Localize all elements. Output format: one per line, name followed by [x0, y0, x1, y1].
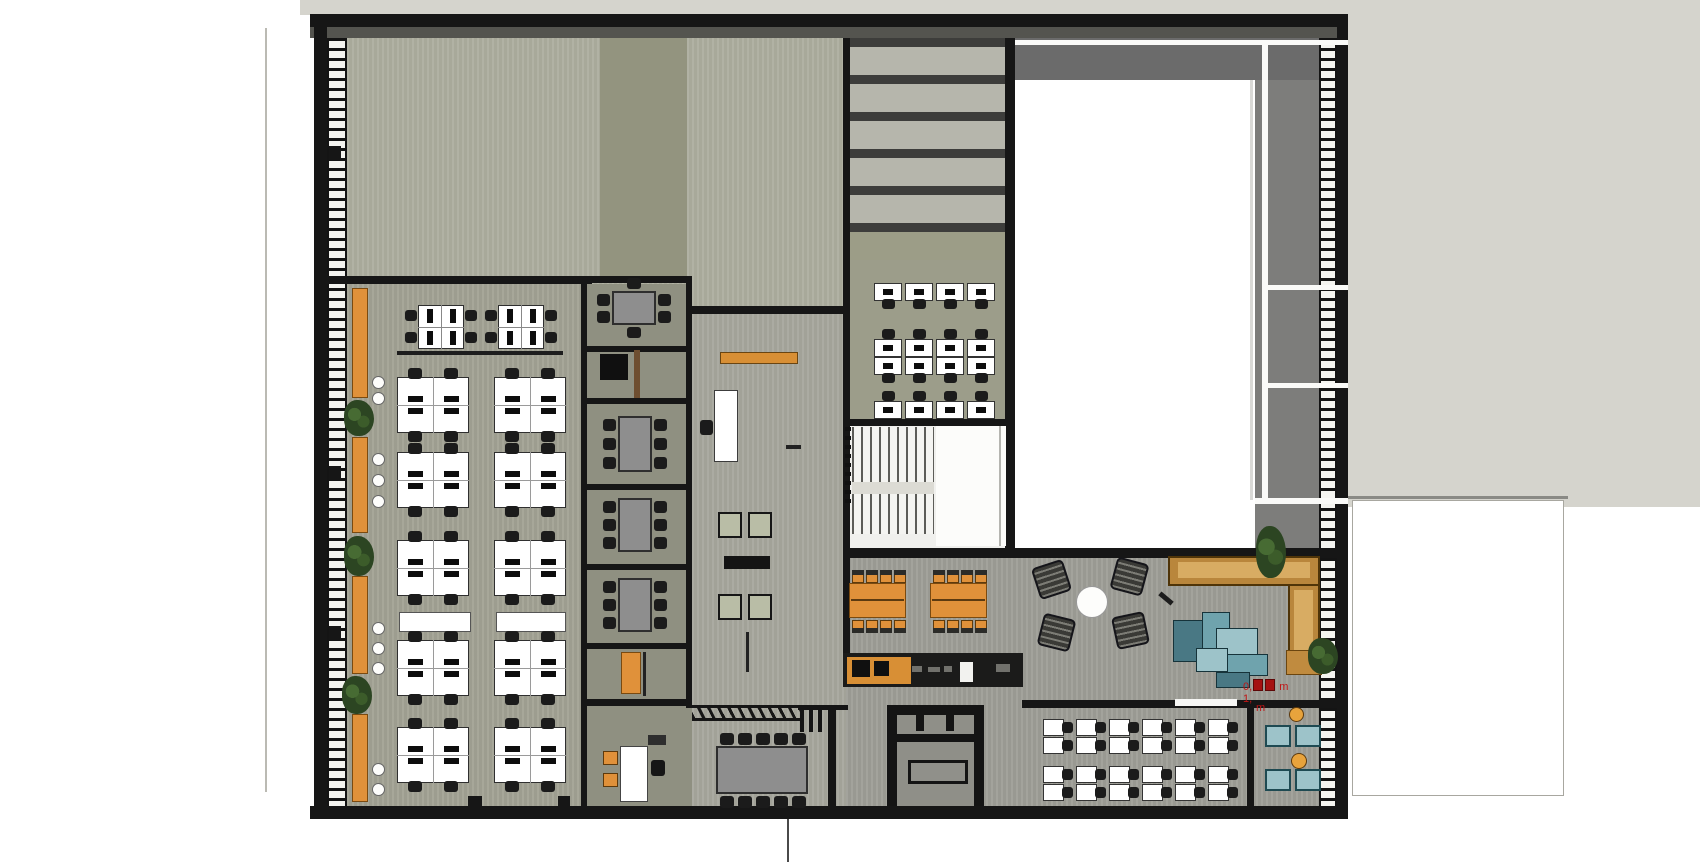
- training-desk: [1142, 766, 1163, 783]
- bench: [724, 556, 770, 569]
- atrium-edge-line: [1250, 80, 1253, 500]
- task-chair-icon: [444, 594, 458, 605]
- task-chair-icon: [444, 718, 458, 729]
- wall-hall-room-right: [828, 705, 836, 806]
- column-bottom-2: [558, 796, 570, 806]
- task-chair-icon: [1095, 769, 1106, 780]
- monitor-icon: [444, 471, 459, 477]
- standing-desk: [714, 390, 738, 462]
- task-chair-icon: [774, 733, 788, 745]
- guest-chair-2: [603, 773, 618, 787]
- column-left-2: [329, 466, 341, 480]
- shaft-fin-2: [946, 705, 954, 731]
- wall-dash: [786, 445, 801, 449]
- louver-frame: [850, 149, 1005, 158]
- dining-chair-back: [866, 628, 878, 633]
- task-chair-icon: [975, 391, 988, 401]
- task-chair-icon: [408, 531, 422, 542]
- monitor-icon: [505, 671, 520, 677]
- training-desk: [1043, 737, 1064, 754]
- dining-chair-back: [894, 570, 906, 575]
- dining-chair-back: [852, 628, 864, 633]
- task-chair-icon: [505, 781, 519, 792]
- monitor-icon: [883, 363, 893, 369]
- beam-cross-3: [1255, 498, 1348, 504]
- task-chair-icon: [913, 373, 926, 383]
- training-desk: [1175, 766, 1196, 783]
- monitor-icon: [541, 571, 556, 577]
- beam-cross-1: [1268, 285, 1348, 290]
- redacted-digit-icon: [1265, 679, 1275, 691]
- task-chair-icon: [505, 594, 519, 605]
- task-chair-icon: [597, 294, 610, 306]
- monitor-icon: [444, 758, 459, 764]
- locker-cabinet: [352, 576, 368, 674]
- monitor-icon: [408, 571, 423, 577]
- column-left-3: [329, 626, 341, 640]
- monitor-icon: [444, 671, 459, 677]
- training-desk: [1043, 719, 1064, 736]
- training-desk: [1142, 784, 1163, 801]
- task-chair-icon: [408, 718, 422, 729]
- dining-chair-back: [947, 570, 959, 575]
- task-chair-icon: [1161, 787, 1172, 798]
- task-chair-icon: [444, 431, 458, 442]
- task-chair-icon: [541, 631, 555, 642]
- training-desk: [1208, 719, 1229, 736]
- task-chair-icon: [1128, 740, 1139, 751]
- beam-vertical: [1262, 45, 1268, 501]
- task-chair-icon: [1161, 769, 1172, 780]
- stair-flight-upper: [852, 427, 934, 482]
- wall-room-div-4: [581, 564, 692, 570]
- task-chair-icon: [658, 294, 671, 306]
- task-chair-icon: [408, 694, 422, 705]
- task-chair-icon: [545, 310, 557, 321]
- stair-flight-lower: [852, 494, 934, 534]
- task-chair-icon: [444, 694, 458, 705]
- outside-right-panel: [1348, 0, 1700, 507]
- task-chair-icon: [654, 581, 667, 593]
- stair-shaft-rail: [798, 705, 848, 710]
- training-desk: [1208, 766, 1229, 783]
- monitor-icon: [427, 331, 433, 345]
- monitor-icon: [541, 671, 556, 677]
- task-chair-icon: [408, 431, 422, 442]
- coffee-machine-icon-2: [874, 661, 889, 676]
- door-orange: [621, 652, 641, 694]
- task-chair-icon: [408, 368, 422, 379]
- training-desk: [1109, 784, 1130, 801]
- dimension-label-3: m: [1256, 703, 1265, 714]
- louver-frame: [850, 112, 1005, 121]
- task-chair-icon: [1194, 740, 1205, 751]
- task-chair-icon: [627, 278, 641, 289]
- task-chair-icon: [1227, 722, 1238, 733]
- task-chair-icon: [541, 443, 555, 454]
- monitor-icon: [444, 571, 459, 577]
- guest-chair-1: [603, 751, 618, 765]
- dimension-label-2: 1,: [1243, 694, 1252, 705]
- task-chair-icon: [1161, 740, 1172, 751]
- monitor-icon: [507, 309, 513, 323]
- door-frame-line: [643, 652, 646, 696]
- task-chair-icon: [658, 311, 671, 323]
- task-chair-icon: [654, 438, 667, 450]
- coffee-machine-icon: [852, 660, 870, 677]
- task-chair-icon: [505, 368, 519, 379]
- atrium-void: [1015, 80, 1255, 558]
- task-chair-icon: [1062, 769, 1073, 780]
- stool-icon: [372, 392, 385, 405]
- cube-table-1: [718, 512, 742, 538]
- monitor-icon: [505, 746, 520, 752]
- task-chair-icon: [944, 373, 957, 383]
- task-chair-icon: [541, 531, 555, 542]
- task-chair-icon: [792, 796, 806, 808]
- bar-l-horizontal-inner: [1178, 562, 1310, 578]
- wall-bottom: [310, 806, 1348, 819]
- monitor-icon: [427, 309, 433, 323]
- sideboard: [720, 352, 798, 364]
- side-table-dark: [648, 735, 666, 745]
- dimension-text: m: [1256, 702, 1265, 714]
- monitor-icon: [945, 407, 955, 413]
- side-table-white-2: [496, 612, 566, 632]
- meeting-table: [618, 578, 652, 632]
- wall-hall-top: [687, 306, 848, 314]
- training-desk: [1109, 737, 1130, 754]
- cube-table-3: [718, 594, 742, 620]
- monitor-icon: [976, 363, 986, 369]
- task-chair-icon: [444, 368, 458, 379]
- monitor-icon: [408, 471, 423, 477]
- task-chair-icon: [603, 617, 616, 629]
- office-desk-white: [620, 746, 648, 802]
- task-chair-icon: [1062, 722, 1073, 733]
- dining-chair-back: [947, 628, 959, 633]
- cable-tray: [397, 351, 563, 355]
- wall-teal-room-left: [1247, 700, 1254, 806]
- task-chair-icon: [654, 457, 667, 469]
- task-chair-icon: [1194, 769, 1205, 780]
- louver-panel: [850, 121, 1005, 149]
- training-desk: [1142, 719, 1163, 736]
- plant-icon: [1308, 638, 1338, 674]
- shaft-wall-top: [887, 705, 984, 715]
- task-chair-icon: [597, 311, 610, 323]
- stool-icon: [372, 642, 385, 655]
- task-chair-icon: [1227, 769, 1238, 780]
- stool-orange-2: [1291, 753, 1307, 769]
- table-seam: [851, 599, 904, 601]
- desk-divider: [494, 755, 566, 756]
- shaft-wall-left: [887, 705, 897, 806]
- column-bottom-1: [468, 796, 482, 806]
- wall-atrium-left: [1005, 38, 1015, 558]
- task-chair-icon: [720, 796, 734, 808]
- task-chair-icon: [603, 419, 616, 431]
- meeting-table: [612, 291, 656, 325]
- task-chair-icon: [975, 329, 988, 339]
- training-desk: [1175, 784, 1196, 801]
- monitor-icon: [505, 471, 520, 477]
- dining-chair-back: [894, 628, 906, 633]
- task-chair-icon: [944, 329, 957, 339]
- lounge-seat-teal: [1265, 769, 1291, 791]
- task-chair-icon: [505, 718, 519, 729]
- training-desk: [1043, 784, 1064, 801]
- stairwell-divider-line: [999, 426, 1001, 546]
- desk-divider: [397, 568, 469, 569]
- monitor-icon: [945, 345, 955, 351]
- door-leaf-line: [746, 632, 749, 672]
- task-chair-icon: [405, 310, 417, 321]
- stool-icon: [372, 783, 385, 796]
- task-chair-icon: [444, 506, 458, 517]
- task-chair-icon: [654, 501, 667, 513]
- cube-table-4: [748, 594, 772, 620]
- louver-frame: [850, 38, 1005, 47]
- monitor-icon: [408, 559, 423, 565]
- dining-chair-back: [852, 570, 864, 575]
- stool-icon: [372, 453, 385, 466]
- lounge-seat-teal: [1265, 725, 1291, 747]
- training-desk: [1109, 766, 1130, 783]
- task-chair-icon: [444, 531, 458, 542]
- hall-floor: [692, 314, 848, 806]
- plant-icon: [344, 536, 374, 576]
- task-chair-icon: [444, 443, 458, 454]
- monitor-icon: [408, 659, 423, 665]
- dining-chair-back: [961, 570, 973, 575]
- dining-chair-back: [866, 570, 878, 575]
- desk-divider: [397, 755, 469, 756]
- monitor-icon: [505, 758, 520, 764]
- monitor-icon: [505, 396, 520, 402]
- wall-room-div-6: [581, 699, 692, 706]
- training-desk: [1175, 719, 1196, 736]
- stool-orange-1: [1289, 707, 1304, 722]
- monitor-icon: [505, 483, 520, 489]
- column-left-1: [329, 146, 341, 160]
- task-chair-icon: [444, 631, 458, 642]
- task-chair-icon: [603, 501, 616, 513]
- phone-desk: [600, 354, 628, 380]
- task-chair-icon: [627, 327, 641, 338]
- task-chair-icon: [408, 781, 422, 792]
- task-chair-icon: [465, 310, 477, 321]
- louver-frame: [850, 186, 1005, 195]
- dining-chair-back: [933, 570, 945, 575]
- louver-panel: [850, 84, 1005, 112]
- task-chair-icon: [541, 431, 555, 442]
- locker-cabinet: [352, 437, 368, 533]
- task-chair-icon: [1128, 722, 1139, 733]
- task-chair-icon: [913, 329, 926, 339]
- locker-cabinet: [352, 714, 368, 802]
- terrace-floor: [347, 38, 848, 314]
- wall-room-div-3: [581, 484, 692, 490]
- task-chair-icon: [541, 781, 555, 792]
- monitor-icon: [505, 571, 520, 577]
- bar-item: [928, 667, 940, 672]
- monitor-icon: [505, 559, 520, 565]
- dining-chair-back: [975, 628, 987, 633]
- bar-item: [944, 666, 952, 672]
- shaft-platform: [908, 760, 968, 784]
- locker-cabinet: [352, 288, 368, 398]
- training-desk: [1142, 737, 1163, 754]
- wall-office-top: [320, 276, 592, 284]
- monitor-icon: [450, 309, 456, 323]
- adjacent-building-roof-edge: [1348, 496, 1568, 499]
- task-chair-icon: [1227, 787, 1238, 798]
- task-chair-icon: [1095, 787, 1106, 798]
- monitor-icon: [530, 331, 536, 345]
- louver-panel: [850, 195, 1005, 223]
- task-chair-icon: [774, 796, 788, 808]
- monitor-icon: [914, 345, 924, 351]
- monitor-icon: [408, 408, 423, 414]
- task-chair-icon: [720, 733, 734, 745]
- desk-divider: [397, 480, 469, 481]
- monitor-icon: [505, 659, 520, 665]
- task-chair-icon: [603, 537, 616, 549]
- monitor-icon: [408, 746, 423, 752]
- plant-icon: [344, 400, 374, 436]
- whiteboard-band: [1175, 699, 1237, 706]
- wall-desk-room-bottom: [850, 419, 1005, 426]
- desk-divider: [397, 668, 469, 669]
- training-desk: [1043, 766, 1064, 783]
- monitor-icon: [408, 396, 423, 402]
- monitor-icon: [883, 345, 893, 351]
- task-chair-icon: [505, 443, 519, 454]
- task-chair-icon: [654, 519, 667, 531]
- task-chair-icon: [913, 299, 926, 309]
- hall-meeting-table: [716, 746, 808, 794]
- grate-walkway: [692, 705, 804, 721]
- cube-table-2: [748, 512, 772, 538]
- training-desk: [1076, 784, 1097, 801]
- monitor-icon: [914, 289, 924, 295]
- shaft-floor: [887, 705, 984, 806]
- wall-room-div-5: [581, 643, 692, 649]
- training-desk: [1208, 737, 1229, 754]
- monitor-icon: [530, 309, 536, 323]
- task-chair-icon: [654, 537, 667, 549]
- task-chair-icon: [882, 373, 895, 383]
- monitor-icon: [444, 396, 459, 402]
- terrace-dark-band: [600, 38, 687, 278]
- task-chair-icon: [603, 438, 616, 450]
- wall-left: [314, 14, 327, 819]
- monitor-icon: [945, 363, 955, 369]
- outside-bottom-line: [787, 819, 789, 862]
- desk-divider: [494, 568, 566, 569]
- monitor-icon: [408, 671, 423, 677]
- desk-divider: [494, 480, 566, 481]
- bar-item: [996, 664, 1010, 672]
- task-chair-icon: [408, 443, 422, 454]
- floor-plan-canvas: 0, m 1, m: [0, 0, 1700, 862]
- task-chair-icon: [603, 599, 616, 611]
- lounge-seat-teal: [1295, 725, 1321, 747]
- stool-icon: [372, 622, 385, 635]
- wall-room-div-2: [581, 398, 692, 404]
- lounge-chair-icon: [1111, 611, 1150, 650]
- task-chair-icon: [1194, 722, 1205, 733]
- stool-icon: [372, 662, 385, 675]
- task-chair-icon: [541, 694, 555, 705]
- task-chair-icon: [603, 519, 616, 531]
- stool-icon: [372, 763, 385, 776]
- rail-post-3: [818, 710, 822, 732]
- task-chair-icon: [792, 733, 806, 745]
- dining-chair-back: [933, 628, 945, 633]
- monitor-icon: [408, 483, 423, 489]
- monitor-icon: [541, 396, 556, 402]
- lounge-table-circle: [1076, 586, 1108, 618]
- window-wall-right: [1319, 38, 1337, 806]
- task-chair-icon: [654, 599, 667, 611]
- dining-chair-back: [880, 570, 892, 575]
- stairwell-open-area: [936, 426, 1006, 546]
- stool-icon: [372, 474, 385, 487]
- task-chair-icon: [405, 332, 417, 343]
- plant-icon: [342, 676, 372, 714]
- wall-right: [1337, 14, 1348, 819]
- task-chair-icon: [408, 631, 422, 642]
- task-chair-icon: [882, 391, 895, 401]
- task-chair-icon: [465, 332, 477, 343]
- stool-icon: [372, 376, 385, 389]
- sofa-module: [1196, 648, 1228, 672]
- dining-chair-back: [880, 628, 892, 633]
- task-chair-icon: [1062, 787, 1073, 798]
- phone-room-panel: [634, 350, 640, 398]
- monitor-icon: [541, 559, 556, 565]
- desk-divider: [418, 327, 464, 328]
- side-table-white-1: [399, 612, 471, 632]
- training-desk: [1076, 766, 1097, 783]
- task-chair-icon: [505, 694, 519, 705]
- louver-panel: [850, 232, 1005, 260]
- task-chair-icon: [505, 431, 519, 442]
- training-desk: [1175, 737, 1196, 754]
- task-chair-icon: [756, 796, 770, 808]
- task-chair-icon: [913, 391, 926, 401]
- task-chair-icon: [1095, 722, 1106, 733]
- task-chair-icon: [541, 594, 555, 605]
- monitor-icon: [507, 331, 513, 345]
- monitor-icon: [444, 659, 459, 665]
- task-chair-icon: [654, 419, 667, 431]
- monitor-icon: [541, 758, 556, 764]
- louver-frame: [850, 75, 1005, 84]
- beam-top: [1015, 40, 1348, 45]
- monitor-icon: [945, 289, 955, 295]
- task-chair-icon: [1062, 740, 1073, 751]
- wall-stair-zone-left: [843, 38, 850, 658]
- rail-post-2: [809, 710, 813, 732]
- task-chair-icon: [541, 368, 555, 379]
- task-chair-icon: [882, 299, 895, 309]
- training-desk: [1076, 737, 1097, 754]
- task-chair-icon: [545, 332, 557, 343]
- dimension-text: m: [1276, 681, 1288, 693]
